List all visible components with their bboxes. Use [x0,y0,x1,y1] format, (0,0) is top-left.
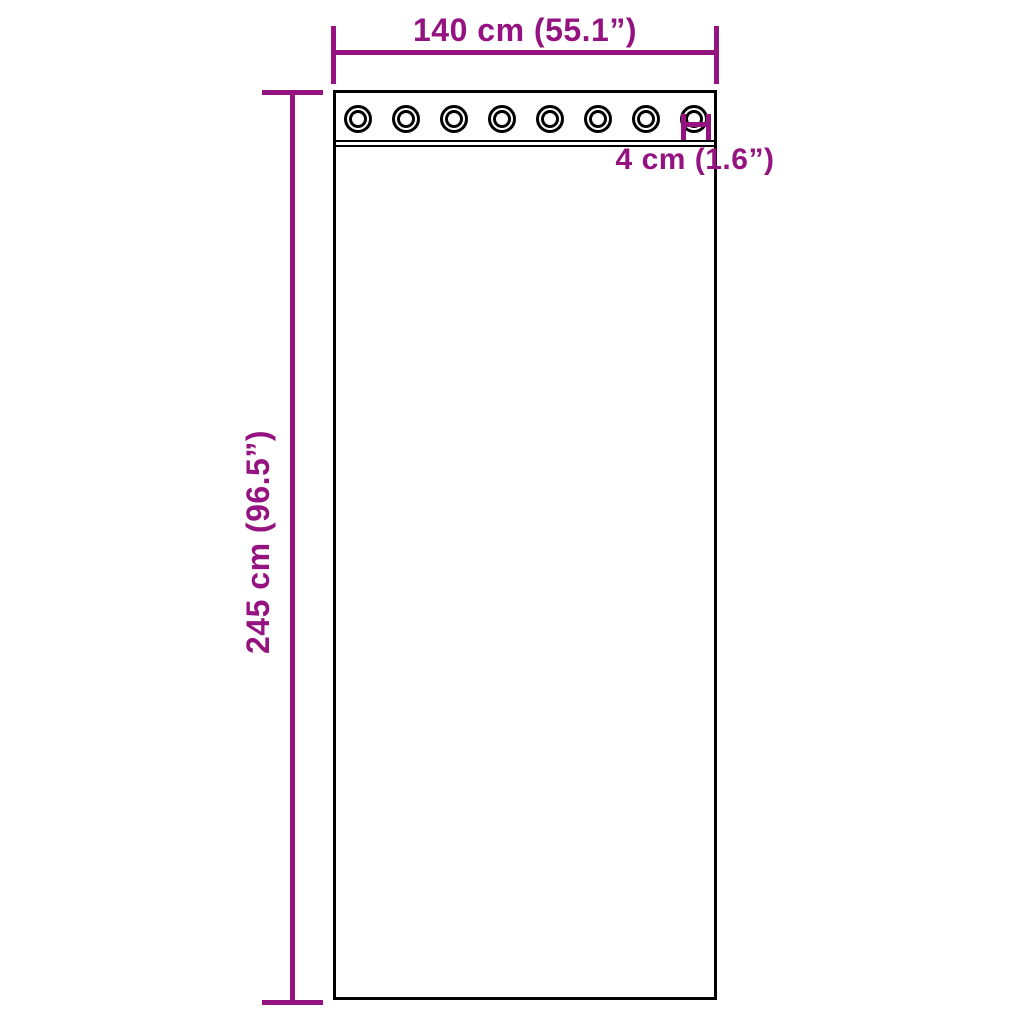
grommet-dimension-label: 4 cm (1.6”) [616,145,775,175]
grommet-dimension-right-tick [706,114,711,140]
height-dimension-bottom-tick [262,1000,323,1005]
height-dimension-line [290,92,295,1004]
grommet-inner-ring [541,110,559,128]
grommet-icon [344,105,372,133]
grommet-inner-ring [445,110,463,128]
curtain-panel [333,90,717,1000]
grommet-icon [632,105,660,133]
grommet-icon [584,105,612,133]
width-dimension-line [333,50,718,55]
grommet-inner-ring [589,110,607,128]
curtain-dimension-diagram: 140 cm (55.1”) 245 cm (96.5”) 4 cm (1.6”… [0,0,1024,1024]
height-dimension-top-tick [262,90,323,95]
grommet-inner-ring [349,110,367,128]
height-dimension-label: 245 cm (96.5”) [242,430,274,654]
width-dimension-label: 140 cm (55.1”) [413,14,637,46]
grommet-inner-ring [493,110,511,128]
grommet-row [344,105,708,133]
grommet-icon [536,105,564,133]
grommet-inner-ring [637,110,655,128]
grommet-icon [440,105,468,133]
width-dimension-right-tick [714,26,719,84]
grommet-icon [392,105,420,133]
grommet-inner-ring [397,110,415,128]
width-dimension-left-tick [331,26,336,84]
grommet-icon [488,105,516,133]
grommet-band-line-top [335,140,715,142]
grommet-dimension-left-tick [681,114,686,140]
